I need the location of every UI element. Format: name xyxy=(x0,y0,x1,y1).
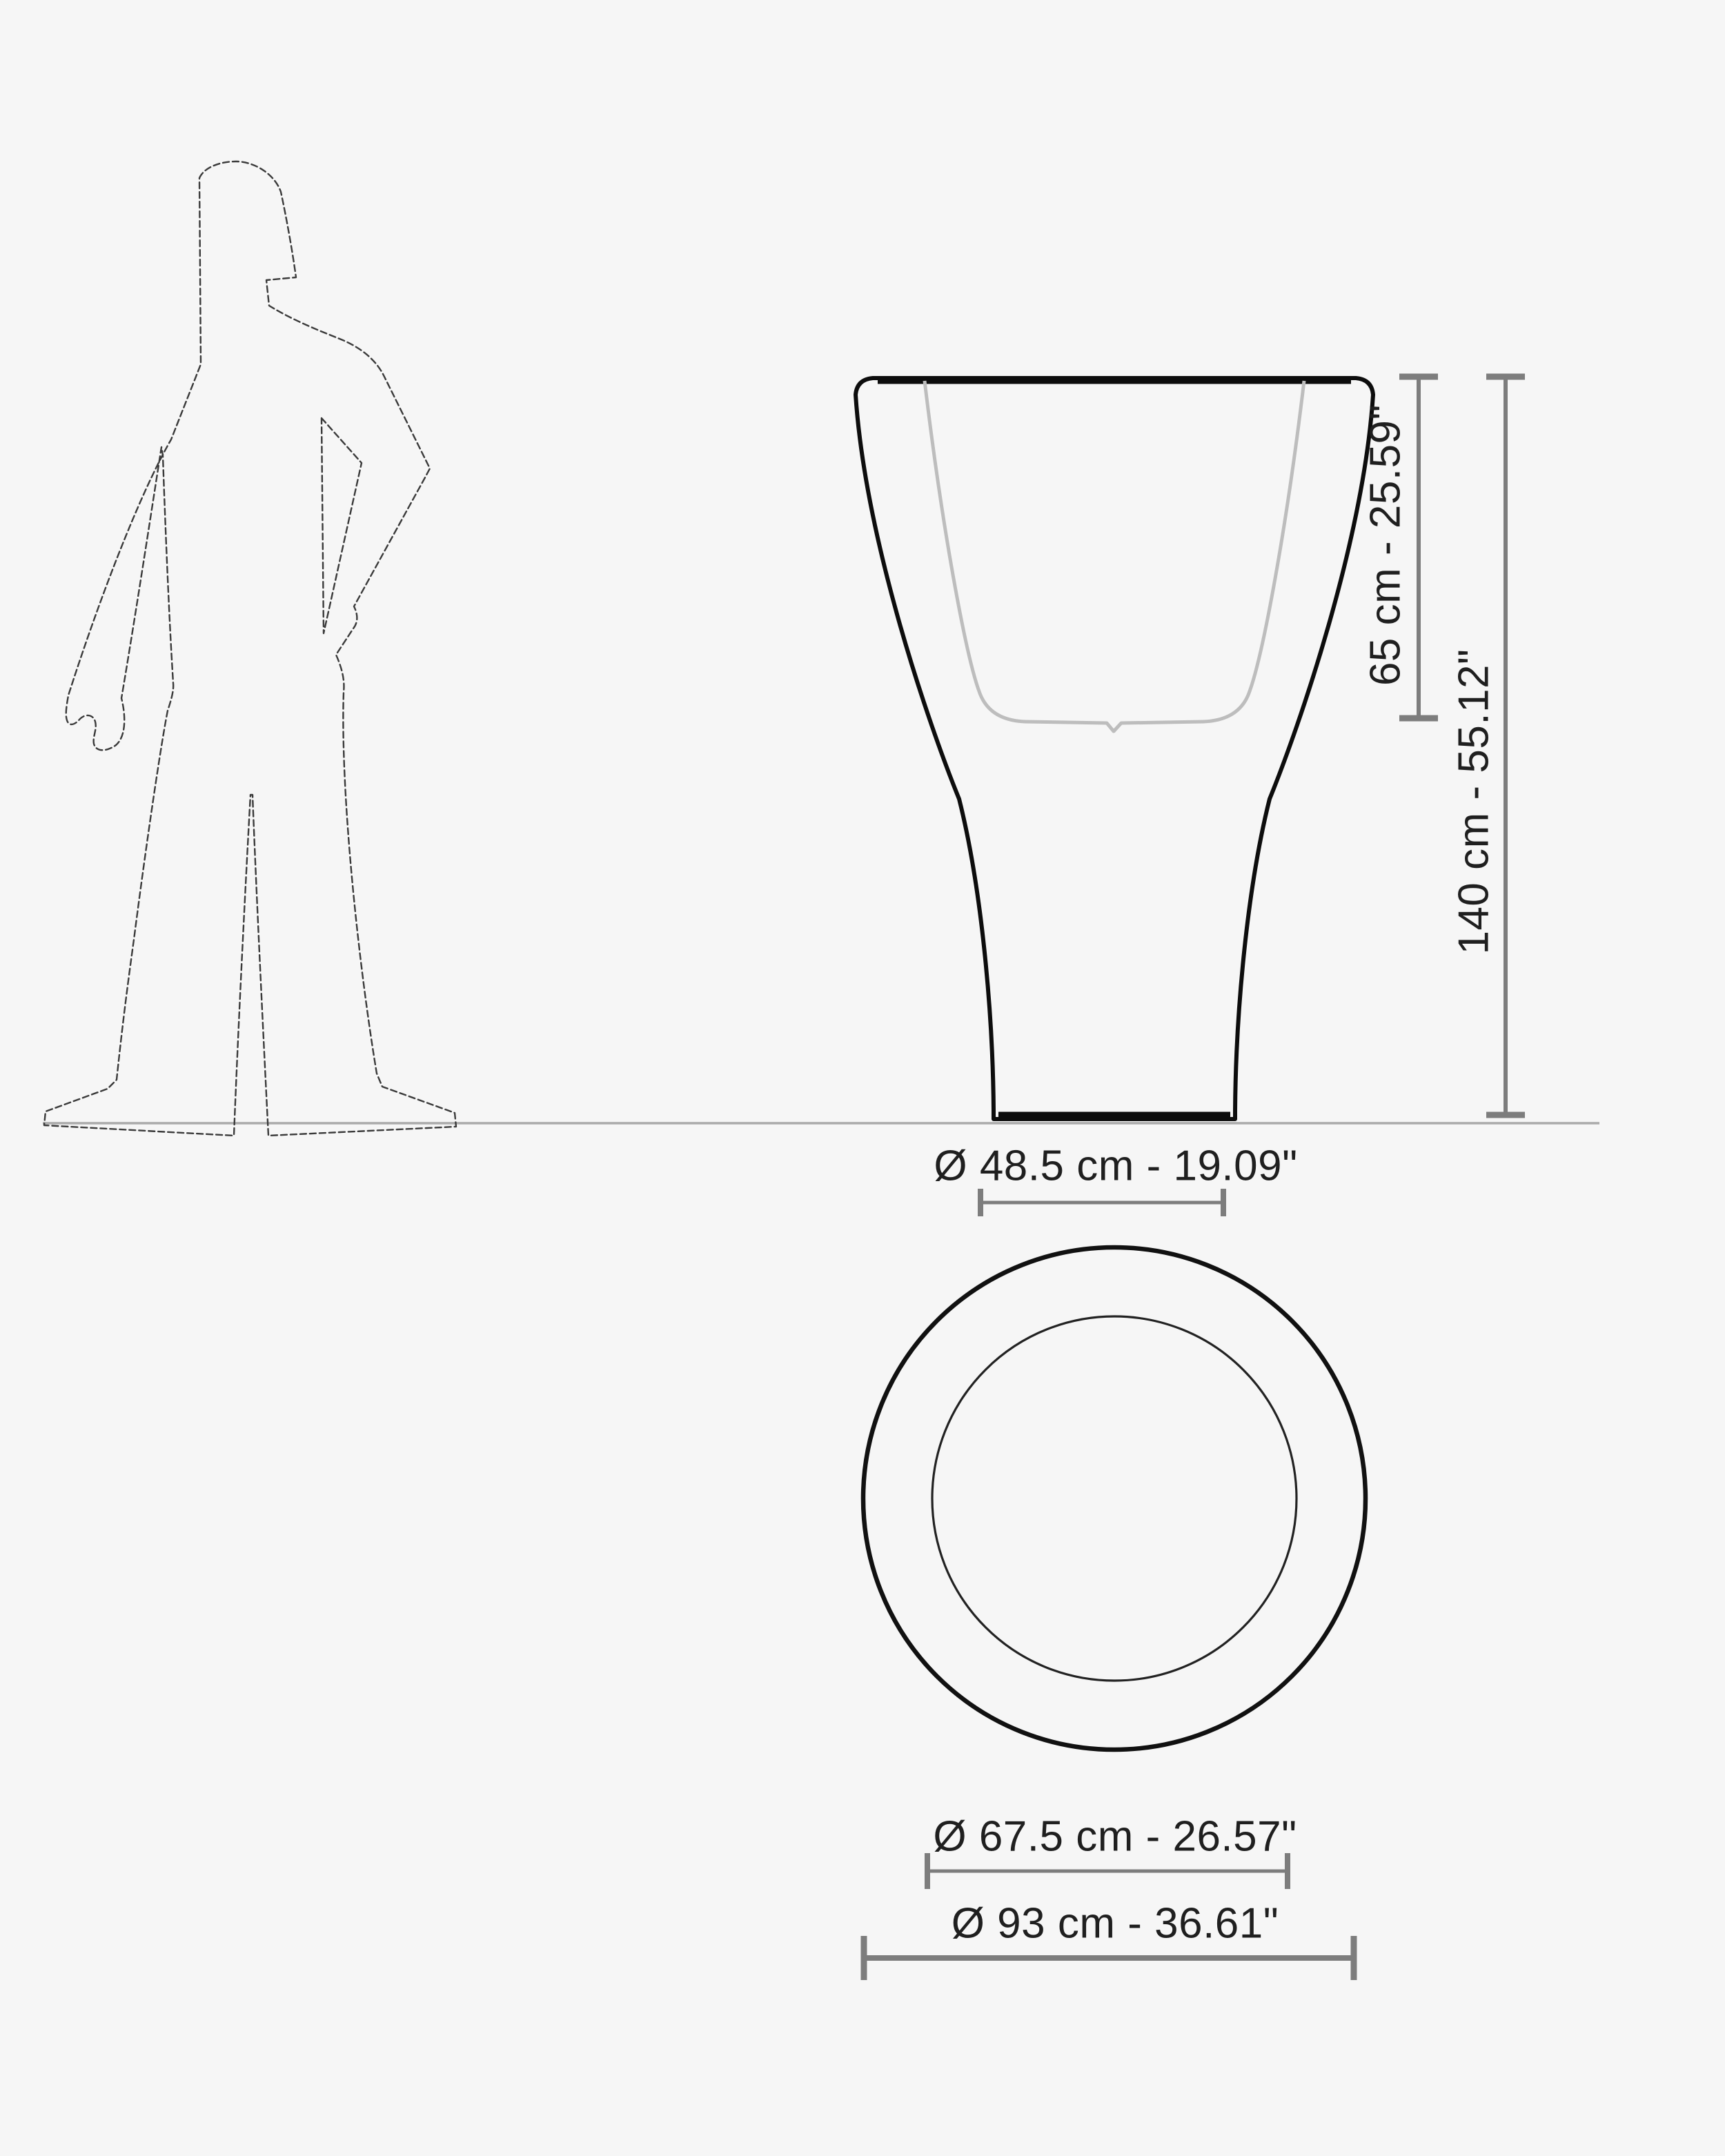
total-height-label: 140 cm - 55.12" xyxy=(1450,649,1499,954)
base-diameter-label: Ø 48.5 cm - 19.09" xyxy=(934,1142,1297,1191)
outer-diameter-label: Ø 93 cm - 36.61" xyxy=(952,1899,1279,1948)
planter-outer-profile xyxy=(856,378,1373,1119)
diagram-drawing xyxy=(0,0,1725,2156)
human-outline xyxy=(44,161,456,1136)
human-silhouette-icon xyxy=(44,161,456,1136)
planter-top-view xyxy=(863,1247,1366,1750)
inner-height-label: 65 cm - 25.59" xyxy=(1361,404,1410,686)
inner-diameter-label: Ø 67.5 cm - 26.57" xyxy=(933,1812,1297,1861)
planter-front-view xyxy=(856,378,1373,1119)
dimension-base-diameter xyxy=(979,1189,1225,1216)
planter-inner-cavity-line xyxy=(925,381,1304,731)
top-view-outer-circle xyxy=(863,1247,1366,1750)
top-view-inner-circle xyxy=(932,1316,1297,1681)
dimension-diagram: 65 cm - 25.59" 140 cm - 55.12" Ø 48.5 cm… xyxy=(0,0,1725,2156)
hand-on-hip-gap xyxy=(322,418,362,633)
